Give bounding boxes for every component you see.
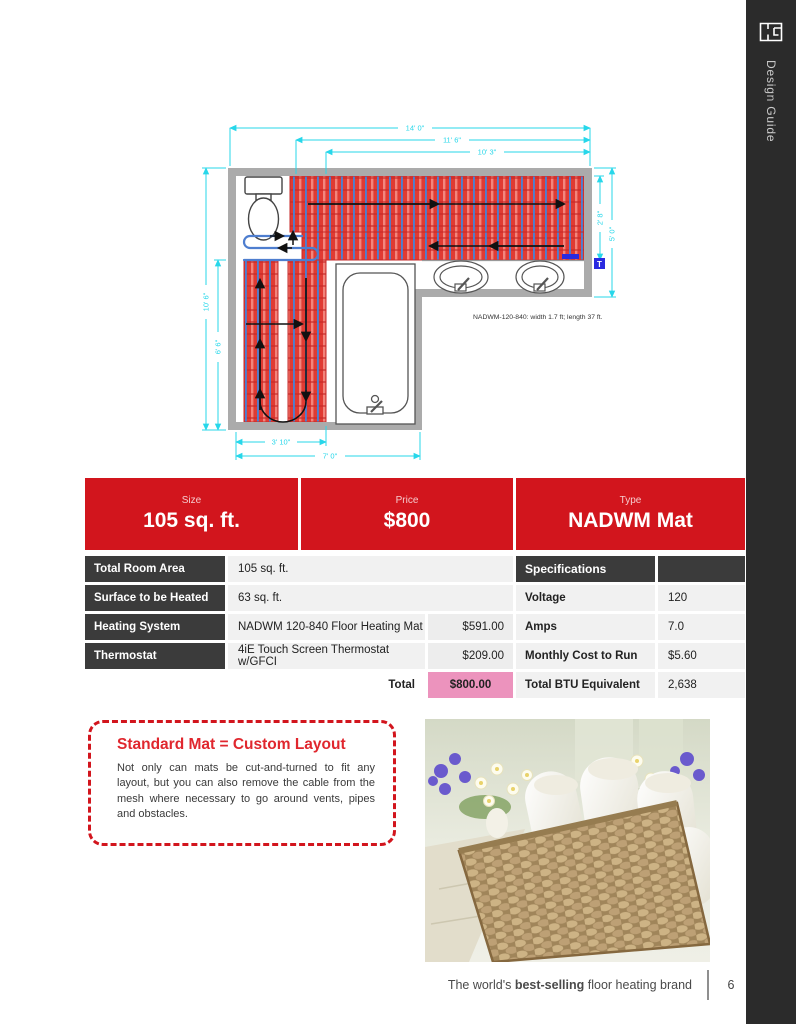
callout-body: Not only can mats be cut-and-turned to f… bbox=[117, 761, 375, 823]
spec-row-label: Voltage bbox=[516, 585, 655, 611]
price-value: $800 bbox=[384, 509, 431, 533]
footer-tagline: The world's best-selling floor heating b… bbox=[448, 978, 692, 992]
dim-top-1: 14' 0" bbox=[406, 124, 425, 133]
summary-price-block: Price $800 bbox=[301, 478, 513, 550]
detail-row-price: $209.00 bbox=[428, 643, 513, 669]
detail-row-label: Total Room Area bbox=[85, 556, 225, 582]
spec-row-value: 7.0 bbox=[658, 614, 745, 640]
dim-top-2: 11' 6" bbox=[443, 136, 461, 145]
detail-row-label: Heating System bbox=[85, 614, 225, 640]
vanity-sinks bbox=[422, 261, 584, 294]
detail-row-value: 63 sq. ft. bbox=[228, 585, 513, 611]
detail-row-price: $591.00 bbox=[428, 614, 513, 640]
total-label: Total bbox=[300, 672, 425, 698]
spec-row-value: 120 bbox=[658, 585, 745, 611]
detail-row-value: NADWM 120-840 Floor Heating Mat bbox=[228, 614, 425, 640]
bathtub bbox=[336, 264, 415, 424]
thermostat-letter: T bbox=[597, 260, 602, 269]
total-value: $800.00 bbox=[428, 672, 513, 698]
mat-product-label: NADWM-120-840: width 1.7 ft; length 37 f… bbox=[473, 314, 603, 321]
page-number: 6 bbox=[722, 978, 740, 992]
spec-row-label: Total BTU Equivalent bbox=[516, 672, 655, 698]
spec-row-value: 2,638 bbox=[658, 672, 745, 698]
summary-size-block: Size 105 sq. ft. bbox=[85, 478, 298, 550]
footer-divider bbox=[707, 970, 709, 1000]
floorplan-icon bbox=[759, 22, 783, 44]
detail-row-label: Thermostat bbox=[85, 643, 225, 669]
price-label: Price bbox=[396, 495, 419, 506]
dim-right-outer: 5' 0" bbox=[608, 226, 617, 241]
spec-row-label: Amps bbox=[516, 614, 655, 640]
bathroom-towels-photo bbox=[425, 719, 710, 962]
detail-row-value: 4iE Touch Screen Thermostat w/GFCI bbox=[228, 643, 425, 669]
dim-left-outer: 10' 6" bbox=[202, 292, 211, 311]
spec-row-value: $5.60 bbox=[658, 643, 745, 669]
type-label: Type bbox=[620, 495, 642, 506]
design-guide-sidebar: Design Guide bbox=[746, 0, 796, 1024]
dim-left-inner: 6' 6" bbox=[214, 339, 223, 354]
sidebar-title: Design Guide bbox=[764, 60, 778, 142]
size-value: 105 sq. ft. bbox=[143, 509, 240, 533]
specs-header-spacer bbox=[658, 556, 745, 582]
floor-plan-diagram: 14' 0" 11' 6" 10' 3" 10' 6" 6' 6" 2' 8" … bbox=[190, 112, 640, 474]
dim-bottom-inner: 3' 10" bbox=[272, 438, 291, 447]
dim-top-3: 10' 3" bbox=[478, 148, 497, 157]
spec-row-label: Monthly Cost to Run bbox=[516, 643, 655, 669]
design-guide-page: 14' 0" 11' 6" 10' 3" 10' 6" 6' 6" 2' 8" … bbox=[0, 0, 796, 1024]
summary-type-block: Type NADWM Mat bbox=[516, 478, 745, 550]
footer: The world's best-selling floor heating b… bbox=[380, 966, 740, 1004]
specs-header: Specifications bbox=[516, 556, 655, 582]
dim-bottom-outer: 7' 0" bbox=[323, 452, 338, 461]
size-label: Size bbox=[182, 495, 201, 506]
dim-right-inner: 2' 8" bbox=[596, 210, 605, 225]
toilet bbox=[245, 177, 282, 240]
callout-title: Standard Mat = Custom Layout bbox=[117, 736, 375, 754]
detail-row-label: Surface to be Heated bbox=[85, 585, 225, 611]
detail-row-value: 105 sq. ft. bbox=[228, 556, 513, 582]
type-value: NADWM Mat bbox=[568, 509, 693, 533]
standard-mat-callout: Standard Mat = Custom Layout Not only ca… bbox=[88, 720, 396, 846]
